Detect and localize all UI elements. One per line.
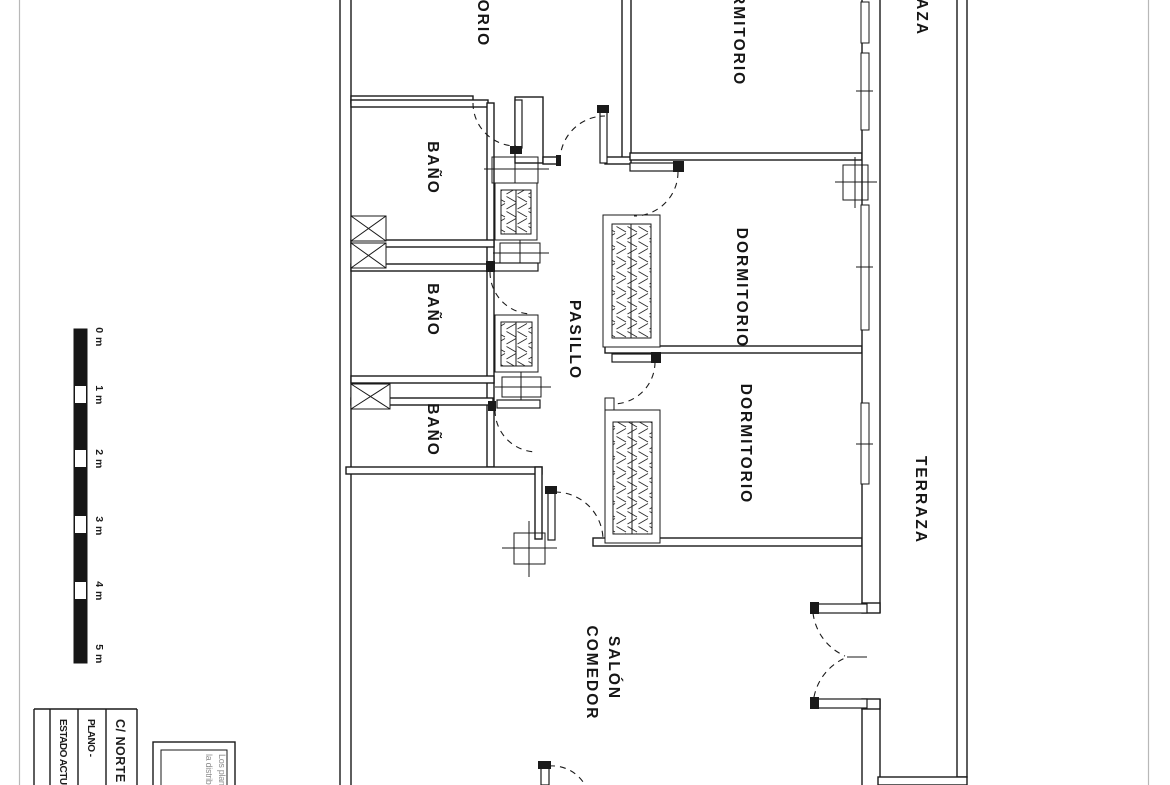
note-box: Los planos la distribución [153, 742, 235, 785]
door-swing-arc [490, 272, 532, 314]
door-leaf [515, 100, 522, 148]
room-label-salon: SALÓN [605, 636, 623, 700]
window [861, 2, 869, 43]
room-label-comedor: COMEDOR [583, 626, 600, 721]
room-label-dormitorio-1: DORMITORIO [474, 0, 491, 47]
door-leaf [488, 263, 538, 271]
room-label-dormitorio-3: DORMITORIO [733, 228, 750, 348]
door-swing-arc [560, 116, 605, 161]
note-line-2: la distribución [204, 754, 214, 785]
scale-tick-4m: 4 m [93, 581, 105, 601]
door-jamb-cap [556, 155, 561, 166]
room-label-bano-1: BAÑO [424, 141, 442, 195]
scale-tick-3m: 3 m [93, 516, 105, 536]
terraza-railing [957, 0, 967, 777]
scale-tick-5m: 5 m [93, 644, 105, 664]
room-label-terraza-top: TERRAZA [913, 0, 930, 36]
door-hinge-cap [538, 761, 551, 769]
door-swing-arc [495, 410, 537, 452]
note-line-1: Los planos [217, 754, 227, 785]
room-label-bano-2: BAÑO [424, 283, 442, 337]
title-block: ESTADO ACTUAL PLANO - C/ NORTE [34, 709, 137, 785]
scale-bar-gap-3m [75, 516, 86, 533]
door-hinge-cap [545, 486, 557, 494]
scale-bar: 0 m 1 m 2 m 3 m 4 m 5 m [74, 327, 105, 664]
wall [351, 376, 494, 383]
door-leaf [813, 699, 867, 708]
scale-bar-gap-2m [75, 450, 86, 467]
floor-plan-sheet: 0 m 1 m 2 m 3 m 4 m 5 m ESTADO ACTUAL PL… [0, 0, 1170, 785]
wall [340, 0, 351, 785]
title-plano: PLANO - [85, 719, 96, 757]
wall [605, 157, 631, 164]
door-swing-arc [613, 362, 655, 404]
wall [351, 100, 488, 107]
door-hinge-cap [510, 146, 522, 154]
door-hinge-cap [597, 105, 609, 113]
fixtures [484, 150, 877, 577]
door-leaf [497, 400, 540, 408]
plumbing-fixture-cross [495, 370, 551, 404]
door-swing-arc [549, 766, 585, 785]
wall-terraza-bottom [878, 777, 967, 785]
wall [543, 157, 558, 164]
door-hinge-cap [810, 697, 819, 709]
door-hinge-cap [488, 401, 496, 411]
scale-bar-gap-4m [75, 582, 86, 599]
windows [856, 2, 873, 484]
room-label-dormitorio-2: DORMITORIO [730, 0, 747, 86]
wall [622, 0, 631, 160]
room-label-pasillo: PASILLO [566, 300, 583, 380]
door-leaf [548, 489, 555, 540]
title-estado: ESTADO ACTUAL [57, 719, 68, 785]
scale-bar-body [74, 329, 87, 663]
scale-tick-1m: 1 m [93, 385, 105, 405]
scale-bar-gap-1m [75, 386, 86, 403]
door-leaf [630, 163, 678, 171]
door-hinge-cap [651, 352, 661, 363]
room-label-bano-3: BAÑO [424, 403, 442, 457]
title-street: C/ NORTE [113, 719, 127, 783]
room-label-dormitorio-4: DORMITORIO [737, 384, 754, 504]
wall [487, 103, 494, 467]
door-leaf [813, 604, 867, 613]
door-swing-arc [555, 492, 603, 540]
door-swing-arc [813, 613, 845, 656]
wall [535, 467, 542, 539]
scale-tick-2m: 2 m [93, 449, 105, 469]
wall [630, 153, 862, 160]
wall [346, 467, 542, 474]
door-swing-arc [634, 172, 678, 216]
door-opening-erase [859, 613, 883, 699]
floor-plan-drawing: 0 m 1 m 2 m 3 m 4 m 5 m ESTADO ACTUAL PL… [0, 0, 1170, 785]
room-label-terraza: TERRAZA [912, 456, 929, 544]
door-hinge-cap [486, 261, 495, 272]
door-hinge-cap [673, 161, 684, 172]
scale-tick-0m: 0 m [93, 327, 105, 347]
door-hinge-cap [810, 602, 819, 614]
